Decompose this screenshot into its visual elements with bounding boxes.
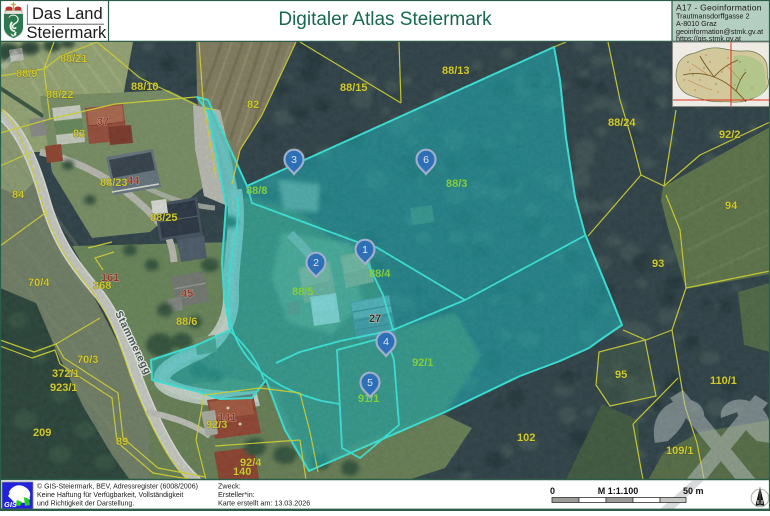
svg-text:Digitaler Atlas Steiermark: Digitaler Atlas Steiermark bbox=[278, 9, 492, 30]
svg-text:Karte erstellt am: 13.03.2026: Karte erstellt am: 13.03.2026 bbox=[218, 499, 310, 508]
svg-text:© GIS-Steiermark, BEV, Adressr: © GIS-Steiermark, BEV, Adressregister (6… bbox=[37, 483, 198, 491]
svg-text:Keine Haftung für Verfügbarkei: Keine Haftung für Verfügbarkeit, Vollstä… bbox=[37, 492, 183, 499]
svg-text:und Richtigkeit der Darstellun: und Richtigkeit der Darstellung. bbox=[37, 501, 134, 508]
svg-text:Steiermark: Steiermark bbox=[27, 24, 108, 42]
svg-text:M 1:1.100: M 1:1.100 bbox=[598, 486, 639, 496]
svg-text:Das Land: Das Land bbox=[32, 5, 103, 23]
svg-text:50 m: 50 m bbox=[683, 486, 704, 496]
svg-text:0: 0 bbox=[550, 486, 555, 496]
svg-text:GIS: GIS bbox=[4, 500, 17, 509]
